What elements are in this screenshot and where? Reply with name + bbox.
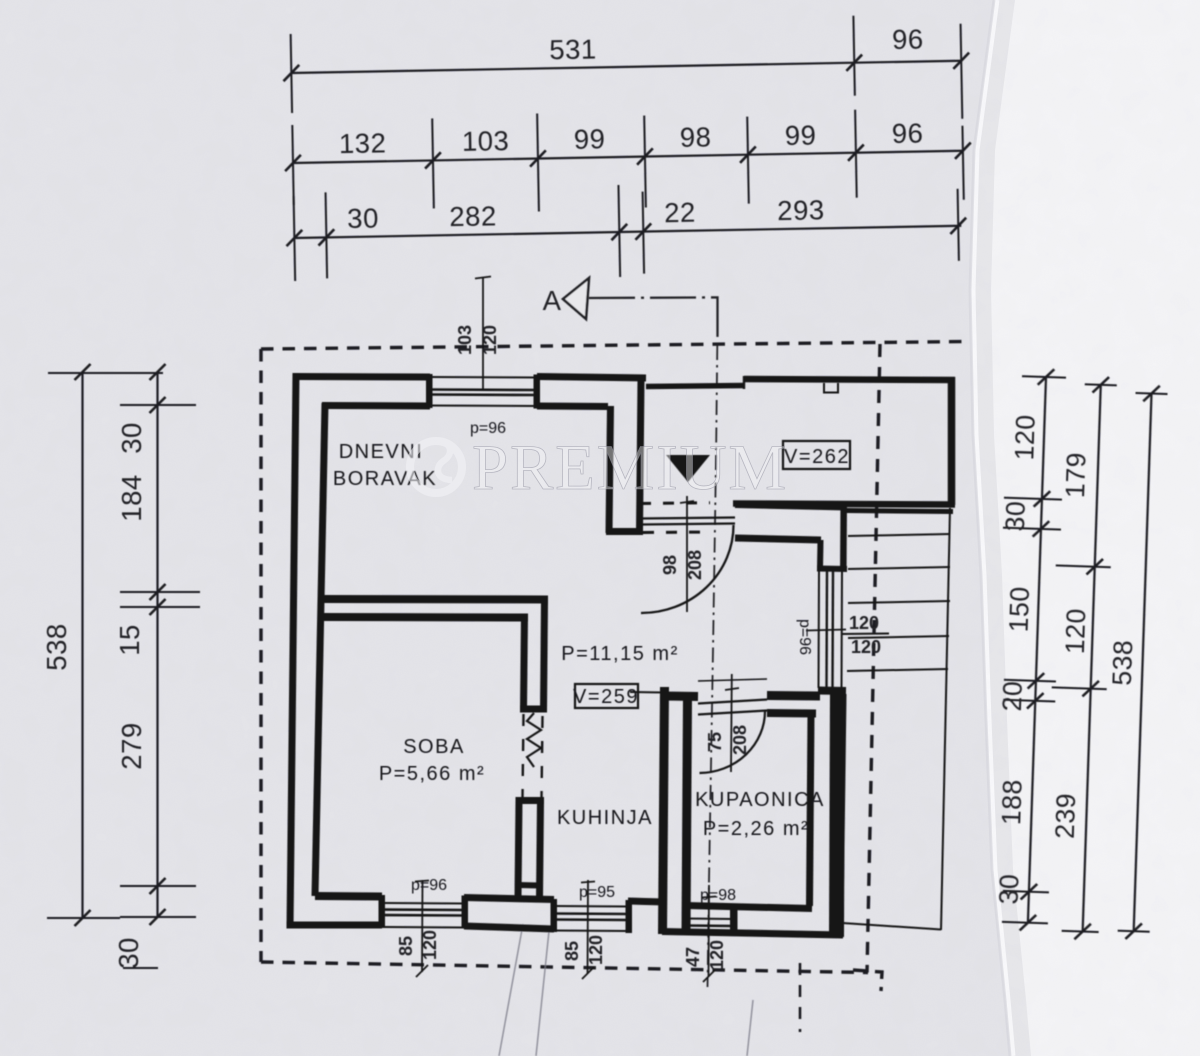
svg-text:p=95: p=95 <box>579 884 615 901</box>
svg-text:15: 15 <box>114 624 145 656</box>
svg-text:120: 120 <box>586 935 606 965</box>
svg-text:47: 47 <box>683 947 703 967</box>
svg-text:85: 85 <box>396 936 416 956</box>
svg-text:A: A <box>543 285 562 316</box>
svg-text:20: 20 <box>997 680 1028 711</box>
svg-text:120: 120 <box>851 637 881 657</box>
svg-text:P=2,26 m²: P=2,26 m² <box>703 818 809 840</box>
svg-text:30: 30 <box>113 937 144 969</box>
svg-text:30: 30 <box>1000 500 1031 531</box>
svg-text:150: 150 <box>1004 586 1035 633</box>
svg-text:KUHINJA: KUHINJA <box>557 807 653 829</box>
svg-text:120: 120 <box>480 325 500 355</box>
svg-text:120: 120 <box>1060 608 1091 655</box>
svg-text:p=96: p=96 <box>796 619 813 655</box>
svg-text:103: 103 <box>462 125 510 157</box>
svg-text:KUPAONICA: KUPAONICA <box>695 789 825 811</box>
svg-text:96: 96 <box>892 23 924 55</box>
svg-text:179: 179 <box>1060 452 1091 499</box>
svg-text:293: 293 <box>777 194 825 226</box>
svg-text:132: 132 <box>339 127 387 159</box>
svg-text:75: 75 <box>705 732 725 752</box>
svg-text:188: 188 <box>996 779 1027 826</box>
svg-text:85: 85 <box>562 941 582 961</box>
svg-text:P=11,15 m²: P=11,15 m² <box>561 643 678 665</box>
svg-text:99: 99 <box>784 119 816 151</box>
svg-text:120: 120 <box>849 613 879 633</box>
svg-text:99: 99 <box>574 123 606 155</box>
svg-text:120: 120 <box>420 930 440 960</box>
svg-text:SOBA: SOBA <box>403 736 465 758</box>
svg-text:208: 208 <box>685 550 705 580</box>
svg-text:p=98: p=98 <box>700 887 736 904</box>
svg-text:184: 184 <box>116 474 147 521</box>
svg-text:PREMIUM: PREMIUM <box>472 432 788 504</box>
svg-text:531: 531 <box>549 33 597 65</box>
svg-text:30: 30 <box>994 873 1025 904</box>
svg-text:96: 96 <box>891 117 923 149</box>
svg-text:103: 103 <box>455 325 475 355</box>
svg-text:V=259: V=259 <box>573 686 639 708</box>
svg-text:98: 98 <box>680 121 712 153</box>
svg-text:538: 538 <box>1107 639 1138 686</box>
svg-text:30: 30 <box>347 202 379 234</box>
svg-text:120: 120 <box>1009 414 1040 461</box>
svg-text:98: 98 <box>660 555 680 575</box>
svg-text:279: 279 <box>116 722 147 769</box>
svg-text:22: 22 <box>664 197 696 229</box>
svg-text:208: 208 <box>730 725 750 755</box>
svg-text:P=5,66 m²: P=5,66 m² <box>379 763 485 785</box>
svg-text:30: 30 <box>116 422 147 454</box>
svg-text:538: 538 <box>41 623 72 670</box>
svg-text:282: 282 <box>449 200 497 232</box>
svg-text:p=96: p=96 <box>411 877 447 894</box>
svg-text:239: 239 <box>1050 793 1081 840</box>
svg-text:120: 120 <box>707 940 727 970</box>
svg-text:V=262: V=262 <box>784 446 850 468</box>
